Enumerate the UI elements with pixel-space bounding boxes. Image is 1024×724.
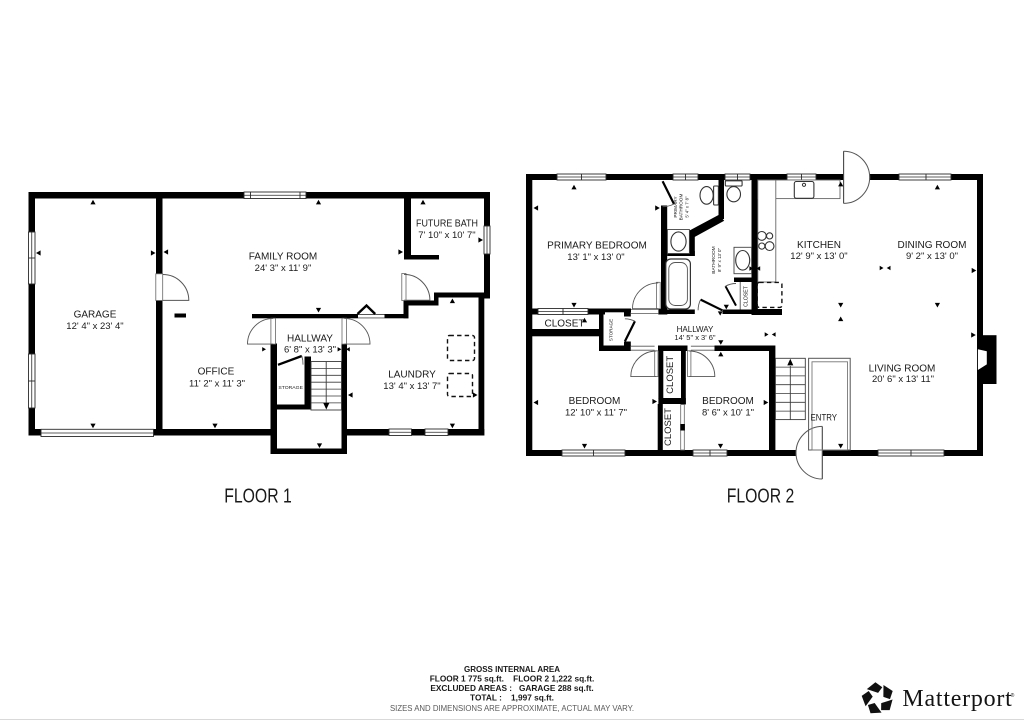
- svg-text:DINING ROOM: DINING ROOM: [898, 240, 967, 251]
- svg-text:PRIMARY BEDROOM: PRIMARY BEDROOM: [547, 241, 647, 252]
- svg-text:FUTURE BATH: FUTURE BATH: [416, 219, 478, 230]
- svg-text:8' 6" x 10' 1": 8' 6" x 10' 1": [702, 408, 754, 419]
- svg-text:11' 2" x 11' 3": 11' 2" x 11' 3": [189, 379, 245, 390]
- svg-text:5' 4" x 7' 8": 5' 4" x 7' 8": [684, 196, 689, 218]
- svg-text:13' 4" x 13' 7": 13' 4" x 13' 7": [383, 381, 440, 392]
- svg-text:HALLWAY: HALLWAY: [287, 334, 333, 345]
- svg-text:STORAGE: STORAGE: [278, 385, 303, 391]
- svg-text:12' 10" x 11' 7": 12' 10" x 11' 7": [565, 408, 627, 419]
- svg-text:FLOOR 1 775 sq.ft. FLOOR 2: FLOOR 1 775 sq.ft. FLOOR 2 1,222 sq.ft.: [430, 673, 595, 683]
- svg-text:9' 2" x 13' 0": 9' 2" x 13' 0": [906, 251, 958, 262]
- svg-text:CLOSET: CLOSET: [663, 408, 674, 446]
- svg-text:FLOOR 2: FLOOR 2: [727, 486, 795, 508]
- svg-text:FLOOR 1: FLOOR 1: [224, 486, 292, 508]
- svg-text:LAUNDRY: LAUNDRY: [388, 370, 436, 381]
- svg-text:GARAGE: GARAGE: [74, 310, 117, 321]
- svg-text:EXCLUDED AREAS : GARAGE 288: EXCLUDED AREAS : GARAGE 288 sq.ft.: [430, 683, 593, 693]
- svg-text:8' 9" x 13' 0": 8' 9" x 13' 0": [717, 248, 722, 273]
- svg-text:6' 8" x 13' 3": 6' 8" x 13' 3": [284, 345, 336, 356]
- svg-text:®: ®: [1011, 692, 1015, 699]
- svg-text:BEDROOM: BEDROOM: [569, 396, 621, 407]
- svg-text:BEDROOM: BEDROOM: [702, 396, 754, 407]
- svg-text:SIZES AND DIMENSIONS ARE APPRO: SIZES AND DIMENSIONS ARE APPROXIMATE, AC…: [390, 704, 634, 713]
- svg-text:KITCHEN: KITCHEN: [797, 240, 841, 251]
- svg-text:BATHROOM: BATHROOM: [679, 194, 684, 221]
- svg-text:CLOSET: CLOSET: [744, 285, 750, 307]
- svg-text:20' 6" x 13' 11": 20' 6" x 13' 11": [872, 374, 934, 385]
- svg-text:STORAGE: STORAGE: [608, 319, 613, 341]
- svg-text:PRIMARY: PRIMARY: [673, 195, 678, 217]
- svg-text:OFFICE: OFFICE: [198, 367, 235, 378]
- svg-text:12' 4" x 23' 4": 12' 4" x 23' 4": [66, 321, 123, 332]
- svg-text:CLOSET: CLOSET: [544, 319, 584, 330]
- svg-text:LIVING ROOM: LIVING ROOM: [869, 364, 936, 375]
- svg-text:24' 3" x 11' 9": 24' 3" x 11' 9": [255, 263, 312, 274]
- svg-text:CLOSET: CLOSET: [665, 356, 676, 394]
- svg-text:12' 9" x 13' 0": 12' 9" x 13' 0": [790, 251, 847, 262]
- svg-text:Matterport: Matterport: [902, 686, 1012, 712]
- svg-text:14' 5" x 3' 6": 14' 5" x 3' 6": [674, 333, 715, 342]
- svg-text:13' 1" x 13' 0": 13' 1" x 13' 0": [567, 252, 624, 263]
- svg-text:ENTRY: ENTRY: [811, 413, 838, 423]
- svg-text:7' 10" x 10' 7": 7' 10" x 10' 7": [418, 230, 475, 241]
- svg-text:TOTAL : 1,997 sq.ft.: TOTAL : 1,997 sq.ft.: [470, 692, 554, 702]
- svg-text:FAMILY ROOM: FAMILY ROOM: [249, 252, 318, 263]
